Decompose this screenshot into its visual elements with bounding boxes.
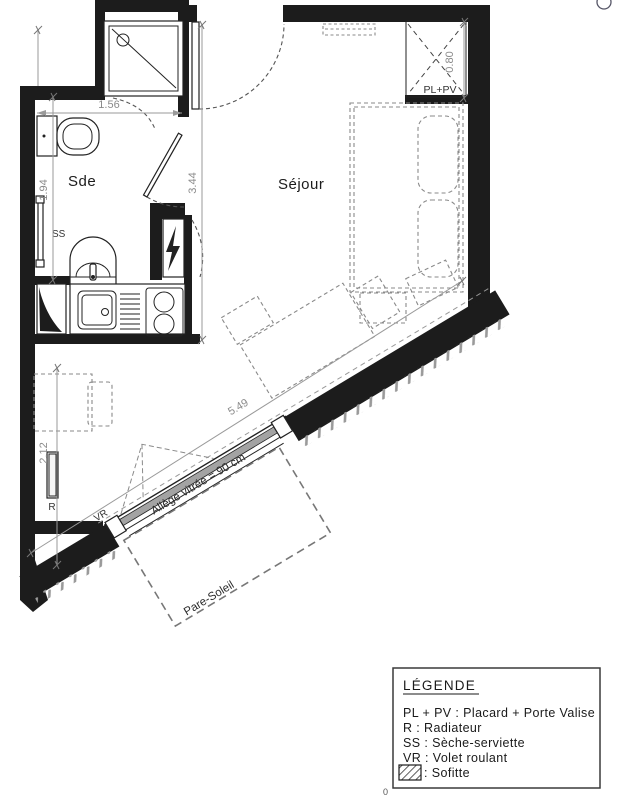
- stray-zero-mark: 0: [383, 787, 388, 797]
- panel-door-swing: [192, 220, 203, 277]
- legend-item-towel-dryer: SS : Sèche-serviette: [403, 736, 525, 750]
- legend-item-radiator: R : Radiateur: [403, 721, 482, 735]
- bed: [350, 103, 463, 292]
- bathroom-label: Sde: [68, 173, 96, 190]
- floor-plan: Pare-Soleil VR Allège vitrée = 90 cm SS …: [0, 0, 638, 800]
- bathroom-door: [144, 133, 182, 197]
- chair: [351, 276, 400, 328]
- radiator-label: R: [48, 502, 55, 513]
- chair: [360, 293, 406, 323]
- toilet-tank: [37, 116, 57, 156]
- entrance: [192, 22, 284, 109]
- window-glazing: [120, 427, 278, 526]
- window-sill-label: Allège vitrée = 90 cm: [149, 452, 248, 518]
- facade-wall-right: [284, 290, 509, 441]
- dim-bath-height: 1.94: [38, 179, 50, 200]
- closet-label: PL+PV: [424, 84, 457, 96]
- dim-bath-width: 1.56: [98, 99, 119, 111]
- desk: [34, 374, 92, 431]
- towel-dryer: [36, 196, 44, 267]
- entrance-door-leaf: [192, 22, 199, 109]
- legend-item-soffit: : Sofitte: [424, 766, 470, 780]
- page-edge-mark: [597, 0, 611, 9]
- living-room-label: Séjour: [278, 176, 324, 193]
- pillow: [418, 116, 458, 193]
- sunshade-label: Pare-Soleil: [182, 579, 236, 618]
- dim-window-length: 5.49: [226, 397, 251, 418]
- dim-lower-wall: 2.12: [38, 442, 50, 463]
- dim-hall-length: 3.44: [187, 172, 199, 193]
- entrance-door-swing: [199, 24, 284, 109]
- towel-dryer-label: SS: [52, 229, 66, 240]
- chair: [221, 296, 273, 344]
- chair: [406, 260, 459, 306]
- soffit-hatch-swatch: [399, 765, 421, 780]
- legend-box: LÉGENDE PL + PV : Placard + Porte Valise…: [393, 668, 600, 788]
- desk-group: [34, 374, 112, 431]
- legend-title: LÉGENDE: [403, 678, 476, 693]
- legend-item-closet: PL + PV : Placard + Porte Valise: [403, 706, 595, 720]
- dim-closet-width: 0.80: [444, 51, 456, 72]
- wall-vent: [323, 24, 375, 35]
- soffit-hatch-right: [300, 316, 510, 447]
- pillow: [418, 200, 458, 277]
- legend-item-roller-shutter: VR : Volet roulant: [403, 751, 508, 765]
